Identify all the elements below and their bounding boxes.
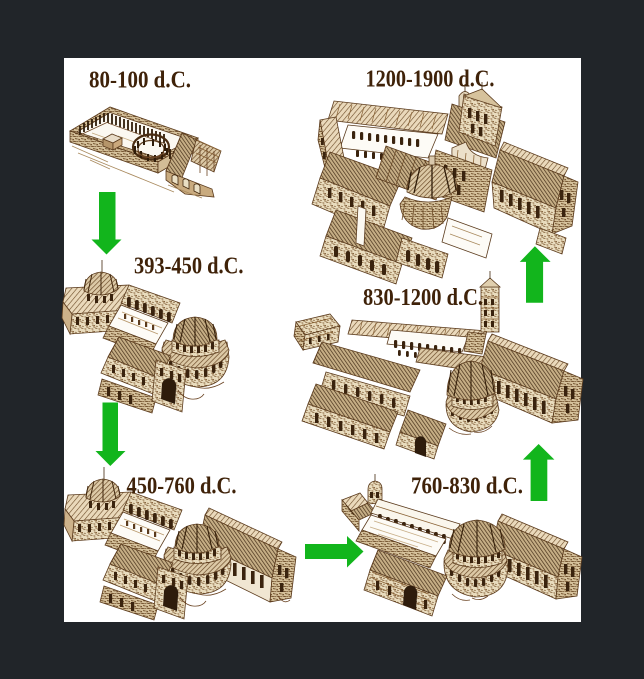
svg-text:830-1200 d.C.: 830-1200 d.C.: [363, 284, 483, 311]
svg-text:760-830 d.C.: 760-830 d.C.: [411, 473, 523, 500]
svg-text:80-100 d.C.: 80-100 d.C.: [89, 67, 191, 94]
svg-text:1200-1900 d.C.: 1200-1900 d.C.: [366, 66, 495, 93]
svg-text:450-760 d.C.: 450-760 d.C.: [127, 473, 237, 500]
svg-text:393-450 d.C.: 393-450 d.C.: [134, 253, 244, 280]
